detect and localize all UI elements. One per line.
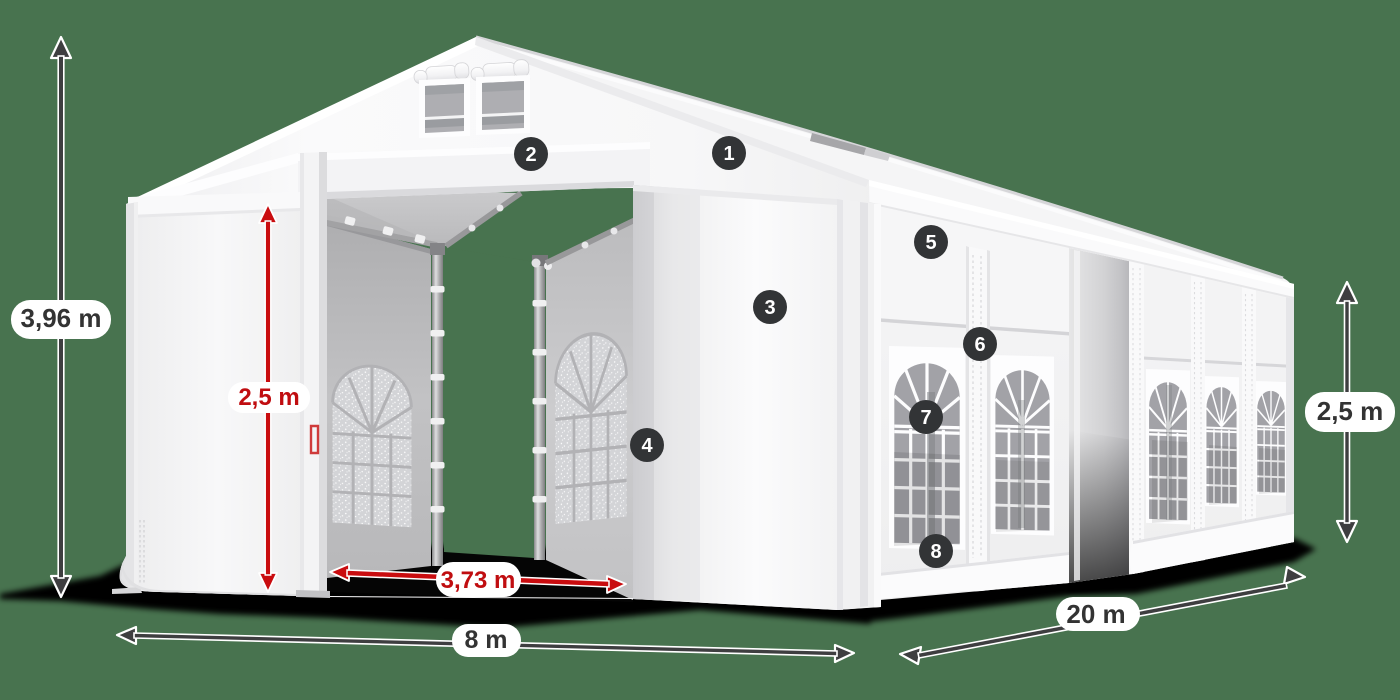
svg-text:2: 2 xyxy=(525,144,536,166)
svg-text:2,5 m: 2,5 m xyxy=(1317,396,1384,426)
svg-text:20 m: 20 m xyxy=(1066,599,1125,629)
svg-text:3,96 m: 3,96 m xyxy=(21,303,102,333)
svg-text:4: 4 xyxy=(641,435,653,457)
svg-text:8 m: 8 m xyxy=(464,626,507,654)
svg-text:8: 8 xyxy=(930,541,941,563)
svg-text:2,5 m: 2,5 m xyxy=(238,384,299,411)
svg-text:5: 5 xyxy=(925,232,936,254)
svg-text:1: 1 xyxy=(723,143,734,165)
svg-text:7: 7 xyxy=(920,407,931,429)
svg-text:6: 6 xyxy=(974,334,985,356)
svg-text:3: 3 xyxy=(764,297,775,319)
svg-text:3,73 m: 3,73 m xyxy=(441,567,516,594)
